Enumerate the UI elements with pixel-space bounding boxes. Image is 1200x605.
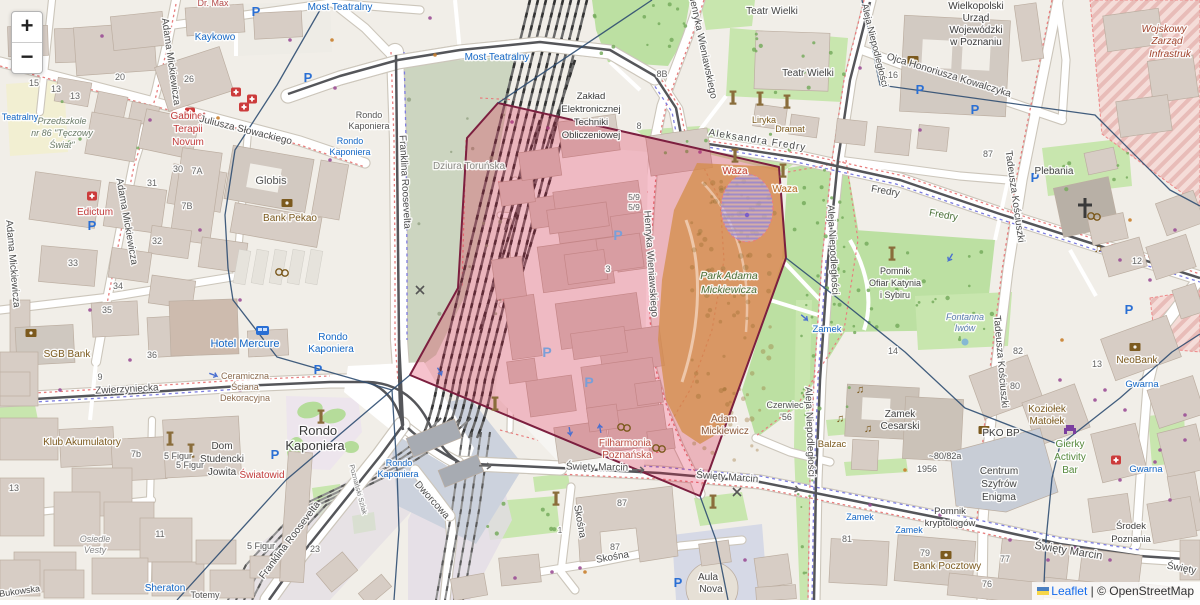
- svg-text:Techniki: Techniki: [574, 117, 608, 128]
- svg-text:Novum: Novum: [172, 137, 204, 148]
- svg-text:9: 9: [97, 372, 102, 382]
- svg-text:1956: 1956: [917, 464, 937, 474]
- svg-text:34: 34: [113, 281, 123, 291]
- svg-text:Zarząd: Zarząd: [1150, 36, 1183, 47]
- svg-text:Teatr Wielki: Teatr Wielki: [746, 6, 798, 17]
- svg-text:Jowita: Jowita: [208, 467, 237, 478]
- svg-text:11: 11: [155, 529, 164, 539]
- svg-text:13: 13: [9, 483, 19, 493]
- svg-text:nr 86 "Tęczowy: nr 86 "Tęczowy: [31, 128, 93, 138]
- svg-text:♫: ♫: [864, 423, 872, 435]
- svg-text:13: 13: [1092, 359, 1102, 369]
- svg-text:Sheraton: Sheraton: [145, 583, 186, 594]
- svg-text:8: 8: [636, 121, 641, 131]
- svg-text:Dom: Dom: [211, 441, 232, 452]
- svg-text:Rondo: Rondo: [318, 332, 348, 343]
- svg-text:Globis: Globis: [255, 175, 287, 187]
- svg-text:Vesty: Vesty: [84, 545, 107, 555]
- svg-text:Kaykowo: Kaykowo: [195, 32, 236, 43]
- svg-text:Bank Pekao: Bank Pekao: [263, 213, 317, 224]
- svg-text:Gwarna: Gwarna: [1129, 464, 1163, 475]
- svg-text:Zamek: Zamek: [885, 409, 917, 420]
- svg-text:36: 36: [147, 350, 157, 360]
- svg-text:Ofiar Katynia: Ofiar Katynia: [869, 278, 921, 288]
- svg-text:Infrastruk: Infrastruk: [1149, 49, 1192, 60]
- svg-text:P: P: [916, 82, 925, 97]
- svg-text:♫: ♫: [836, 413, 844, 425]
- svg-text:Bank Pocztowy: Bank Pocztowy: [913, 561, 981, 572]
- svg-text:NeoBank: NeoBank: [1116, 355, 1158, 366]
- svg-text:Rondo: Rondo: [386, 458, 413, 468]
- svg-text:Teatralny: Teatralny: [2, 112, 39, 122]
- svg-text:P: P: [271, 447, 280, 462]
- svg-text:Kaponiera: Kaponiera: [329, 147, 370, 157]
- svg-text:Gierky: Gierky: [1056, 439, 1085, 450]
- svg-text:SGB Bank: SGB Bank: [44, 349, 92, 360]
- svg-text:76: 76: [982, 579, 992, 589]
- svg-text:5/9: 5/9: [628, 192, 640, 202]
- svg-text:♫: ♫: [1094, 243, 1102, 255]
- svg-text:87: 87: [610, 542, 620, 552]
- svg-text:Balzac: Balzac: [818, 439, 847, 450]
- svg-text:Adam: Adam: [711, 414, 737, 425]
- svg-text:Pomnik: Pomnik: [934, 506, 966, 517]
- svg-text:Czerwiec: Czerwiec: [766, 400, 804, 410]
- svg-text:Terapii: Terapii: [173, 124, 202, 135]
- svg-text:Zakład: Zakład: [577, 91, 606, 102]
- svg-text:Filharmonia: Filharmonia: [599, 438, 652, 449]
- svg-text:Świat": Świat": [49, 139, 75, 150]
- svg-text:Poznańska: Poznańska: [602, 450, 652, 461]
- svg-text:Środek: Środek: [1116, 520, 1146, 532]
- svg-text:Pomnik: Pomnik: [880, 266, 911, 276]
- svg-text:Ściana: Ściana: [231, 381, 259, 392]
- svg-text:1: 1: [558, 526, 563, 535]
- svg-text:87: 87: [983, 149, 993, 159]
- svg-text:Zamek: Zamek: [895, 525, 923, 535]
- svg-text:Kaponiera: Kaponiera: [308, 344, 354, 355]
- svg-text:8B: 8B: [656, 69, 667, 79]
- svg-text:Wojewódzki: Wojewódzki: [949, 25, 1002, 36]
- svg-text:15: 15: [29, 78, 39, 88]
- svg-text:Activity: Activity: [1054, 452, 1086, 463]
- svg-text:7A: 7A: [191, 166, 202, 176]
- svg-text:Matołek: Matołek: [1029, 416, 1065, 427]
- svg-text:Hotel Mercure: Hotel Mercure: [210, 338, 279, 350]
- svg-text:P: P: [252, 4, 261, 19]
- svg-text:Dramat: Dramat: [775, 124, 805, 134]
- svg-text:Teatr Wielki: Teatr Wielki: [782, 68, 834, 79]
- svg-text:Szyfrów: Szyfrów: [981, 479, 1017, 490]
- svg-text:Rondo: Rondo: [299, 423, 337, 438]
- svg-text:Ceramiczna: Ceramiczna: [221, 371, 269, 381]
- svg-text:P: P: [542, 344, 551, 360]
- svg-text:5 Figur: 5 Figur: [247, 541, 275, 551]
- svg-text:kryptologów: kryptologów: [925, 518, 976, 529]
- svg-text:87: 87: [617, 498, 627, 508]
- svg-text:Osiedle: Osiedle: [80, 534, 111, 544]
- svg-text:Most Teatralny: Most Teatralny: [465, 52, 530, 63]
- svg-text:26: 26: [184, 74, 194, 84]
- svg-text:Przedszkole: Przedszkole: [37, 116, 86, 126]
- svg-text:Cesarski: Cesarski: [881, 421, 920, 432]
- svg-text:Wojskowy: Wojskowy: [1141, 24, 1187, 35]
- svg-text:Kaponiera: Kaponiera: [377, 469, 418, 479]
- svg-text:Dekoracyjna: Dekoracyjna: [220, 393, 270, 403]
- svg-text:Aula: Aula: [698, 572, 718, 583]
- svg-text:i Sybiru: i Sybiru: [880, 290, 910, 300]
- svg-text:Waza: Waza: [772, 184, 798, 195]
- svg-text:14: 14: [888, 346, 898, 356]
- svg-text:Centrum: Centrum: [980, 466, 1018, 477]
- svg-text:P: P: [88, 218, 97, 233]
- svg-text:'56: '56: [780, 412, 792, 422]
- svg-text:Iwów: Iwów: [955, 323, 976, 333]
- svg-text:79: 79: [920, 548, 930, 558]
- svg-text:Liryka: Liryka: [752, 115, 776, 125]
- svg-text:♫: ♫: [856, 384, 864, 396]
- svg-text:Dziura Toruńska: Dziura Toruńska: [433, 161, 506, 172]
- svg-text:P: P: [314, 362, 323, 377]
- svg-text:30: 30: [173, 164, 183, 174]
- svg-text:82: 82: [1013, 346, 1023, 356]
- svg-text:Klub Akumulatory: Klub Akumulatory: [43, 437, 121, 448]
- svg-text:P: P: [971, 102, 980, 117]
- svg-text:80: 80: [1010, 381, 1020, 391]
- svg-text:31: 31: [147, 178, 157, 188]
- svg-text:81: 81: [842, 534, 852, 544]
- svg-text:7b: 7b: [131, 449, 141, 459]
- svg-text:13: 13: [51, 84, 61, 94]
- svg-text:Gwarna: Gwarna: [1125, 379, 1159, 390]
- svg-text:77: 77: [1000, 554, 1010, 564]
- svg-text:Totemy: Totemy: [190, 590, 220, 600]
- svg-text:Enigma: Enigma: [982, 492, 1016, 503]
- svg-text:Rondo: Rondo: [337, 136, 364, 146]
- svg-text:Koziołek: Koziołek: [1028, 404, 1067, 415]
- svg-text:PKO BP: PKO BP: [982, 428, 1020, 439]
- svg-text:35: 35: [102, 305, 112, 315]
- svg-text:Urząd: Urząd: [963, 13, 990, 24]
- svg-text:Rondo: Rondo: [356, 110, 383, 120]
- svg-text:P: P: [674, 575, 683, 590]
- svg-text:Studencki: Studencki: [200, 454, 244, 465]
- svg-text:12: 12: [1132, 256, 1142, 266]
- svg-text:16: 16: [888, 70, 898, 80]
- svg-text:Kaponiera: Kaponiera: [285, 438, 345, 453]
- svg-text:Święty Marcin: Święty Marcin: [566, 459, 628, 473]
- svg-text:Poznania: Poznania: [1111, 534, 1151, 545]
- svg-text:P: P: [613, 227, 622, 243]
- svg-text:~80/82a: ~80/82a: [929, 451, 962, 461]
- svg-text:20: 20: [115, 72, 125, 82]
- svg-text:13: 13: [70, 91, 80, 101]
- svg-text:33: 33: [68, 258, 78, 268]
- svg-text:Bar: Bar: [1062, 465, 1078, 476]
- svg-text:Światowid: Światowid: [239, 468, 284, 481]
- svg-text:Mickiewicz: Mickiewicz: [701, 426, 749, 437]
- svg-text:P: P: [304, 70, 313, 85]
- svg-text:Wielkopolski: Wielkopolski: [948, 1, 1004, 12]
- svg-text:Elektronicznej: Elektronicznej: [561, 104, 620, 115]
- svg-text:Most Teatralny: Most Teatralny: [308, 2, 373, 13]
- svg-text:Mickiewicza: Mickiewicza: [701, 284, 757, 296]
- svg-text:7B: 7B: [181, 201, 192, 211]
- svg-text:Park Adama: Park Adama: [700, 270, 758, 282]
- svg-text:P: P: [1125, 302, 1134, 317]
- svg-text:w Poznaniu: w Poznaniu: [949, 37, 1002, 48]
- svg-text:Kaponiera: Kaponiera: [348, 121, 389, 131]
- svg-text:Zamek: Zamek: [846, 512, 874, 522]
- svg-text:Dr. Max: Dr. Max: [197, 0, 229, 8]
- svg-text:Zamek: Zamek: [812, 324, 841, 335]
- svg-text:5 Figur: 5 Figur: [176, 460, 204, 470]
- svg-text:Fontanna: Fontanna: [946, 312, 984, 322]
- svg-text:Nova: Nova: [699, 584, 723, 595]
- svg-text:P: P: [584, 374, 593, 390]
- svg-text:Waza: Waza: [722, 166, 748, 177]
- svg-text:Edictum: Edictum: [77, 207, 113, 218]
- svg-text:23: 23: [310, 544, 320, 554]
- svg-text:Plebania: Plebania: [1035, 166, 1074, 177]
- svg-text:Obliczeniowej: Obliczeniowej: [562, 130, 621, 141]
- svg-text:5/9: 5/9: [628, 202, 640, 212]
- svg-text:32: 32: [152, 236, 162, 246]
- svg-text:3: 3: [605, 264, 610, 274]
